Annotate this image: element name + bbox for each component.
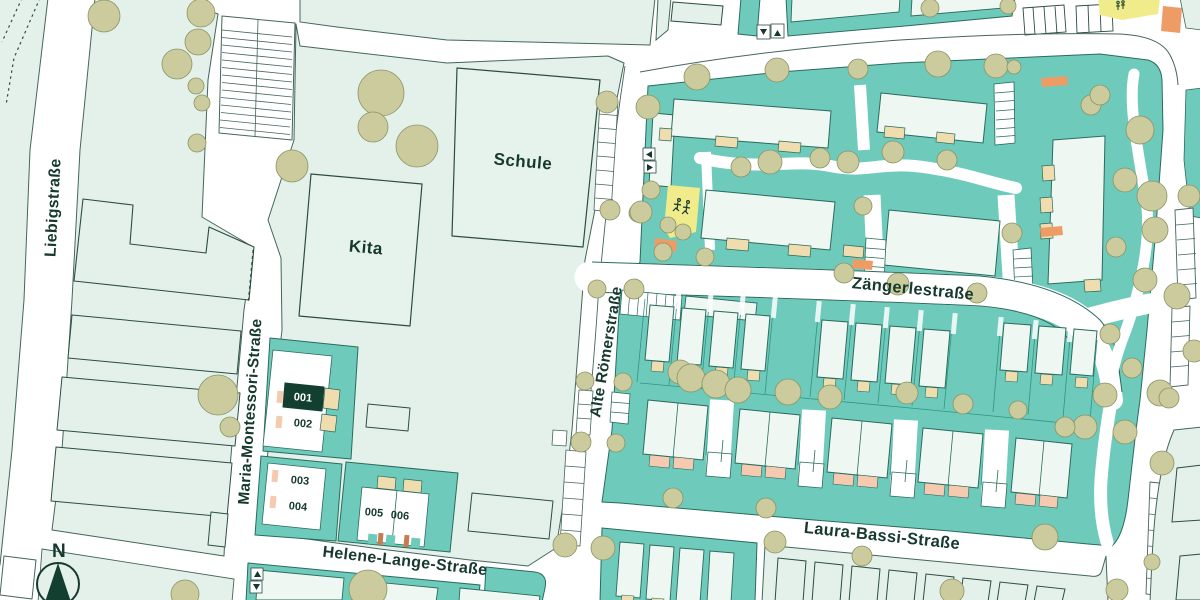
svg-text:002: 002 [293, 417, 312, 431]
svg-text:N: N [52, 541, 66, 562]
svg-text:001: 001 [293, 391, 312, 405]
svg-text:004: 004 [288, 500, 308, 514]
svg-text:003: 003 [290, 474, 309, 488]
svg-text:005: 005 [364, 506, 383, 520]
svg-text:Kita: Kita [348, 237, 384, 259]
svg-text:006: 006 [390, 509, 409, 523]
